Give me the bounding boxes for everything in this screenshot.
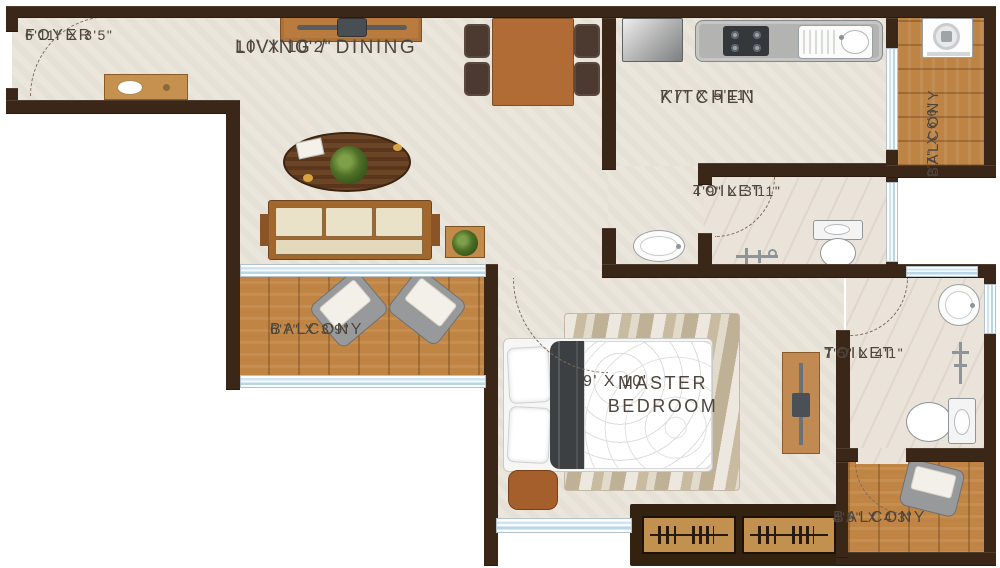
- hangers-icon: [658, 526, 676, 544]
- refrigerator: [622, 18, 683, 62]
- decor-icon: [303, 174, 313, 182]
- room-dimensions: 6'7" X 3'9": [270, 320, 350, 338]
- basin-bowl-icon: [640, 236, 678, 256]
- tv-panel: [782, 352, 820, 454]
- tv-screen-icon: [792, 393, 810, 417]
- window: [906, 266, 978, 277]
- wall: [984, 6, 996, 178]
- shower-icon: [950, 342, 970, 384]
- hangers-icon: [792, 526, 814, 544]
- wall: [836, 552, 996, 566]
- room-dimensions: 6'11" X 3'5": [25, 26, 113, 44]
- knob-icon: [163, 84, 170, 91]
- sofa-cushion: [325, 207, 373, 237]
- window: [240, 264, 486, 277]
- room-dimensions: 2'7" X 6'6": [924, 101, 941, 177]
- pillow-icon: [507, 346, 552, 404]
- room-dimensions: 4'5" X 4'3": [833, 508, 913, 526]
- sofa-cushion: [275, 207, 323, 237]
- wardrobe-panel: [642, 516, 736, 554]
- wall: [6, 6, 18, 32]
- dining-chair: [574, 24, 600, 58]
- kitchen-counter: [695, 20, 883, 62]
- wall: [226, 100, 240, 390]
- sofa: [268, 200, 432, 260]
- planter-stand: [445, 226, 485, 258]
- sink-basin-icon: [841, 30, 869, 54]
- wc-tank-icon: [813, 220, 863, 240]
- book-icon: [296, 137, 325, 159]
- wc-tank-icon: [948, 398, 976, 444]
- pipe-icon: [745, 248, 748, 265]
- wall: [698, 163, 890, 177]
- kitchen-sink: [798, 25, 873, 59]
- room-dimensions: 7'7" X 5'11": [660, 86, 753, 106]
- wall: [836, 448, 858, 462]
- wall: [698, 233, 712, 278]
- room-dimensions: 10' X 10'2": [235, 36, 332, 58]
- faucet-icon: [970, 303, 975, 308]
- ottoman: [508, 470, 558, 510]
- hangers-icon: [758, 526, 776, 544]
- dining-chair: [574, 62, 600, 96]
- dining-table: [492, 18, 574, 106]
- wc-bowl-icon: [906, 402, 952, 442]
- wall: [6, 6, 996, 18]
- room-dimensions: 4'9" X 3'11": [693, 182, 781, 200]
- faucet-icon: [839, 35, 844, 40]
- plant-icon: [330, 146, 368, 184]
- decor-icon: [393, 144, 402, 151]
- plant-icon: [452, 230, 478, 256]
- wc-lid-icon: [824, 224, 850, 235]
- wall: [906, 448, 996, 462]
- sofa-seat: [275, 239, 423, 255]
- pipe-icon: [959, 342, 962, 384]
- wall: [602, 264, 904, 278]
- pipe-icon: [954, 364, 967, 367]
- dining-chair: [464, 24, 490, 58]
- shoe-cabinet: [104, 74, 188, 100]
- shower-icon: [736, 246, 778, 266]
- pillow-icon: [507, 406, 552, 464]
- floor-plan: FOYER 6'11" X 3'5" LIVING / DINING 10' X…: [0, 0, 1000, 568]
- faucet-icon: [676, 244, 681, 249]
- coffee-table: [283, 132, 411, 192]
- gas-hob-icon: [723, 26, 769, 56]
- window: [984, 284, 996, 334]
- tray-icon: [117, 80, 143, 95]
- sofa-cushion: [375, 207, 423, 237]
- sofa-armrest: [260, 214, 269, 246]
- drainboard-icon: [803, 30, 837, 54]
- shower-head-icon: [768, 249, 777, 258]
- window: [886, 48, 898, 150]
- hangers-icon: [692, 526, 714, 544]
- pipe-icon: [952, 351, 969, 354]
- armchair-cushion: [910, 465, 957, 498]
- wall: [602, 18, 616, 170]
- wash-basin: [938, 284, 980, 326]
- wc-lid-icon: [954, 409, 970, 435]
- window: [496, 518, 632, 533]
- window: [886, 182, 898, 262]
- pipe-icon: [758, 250, 761, 263]
- room-dimensions: 7'5" X 4'1": [824, 344, 904, 362]
- wash-basin: [633, 230, 685, 262]
- dining-chair: [464, 62, 490, 96]
- sliding-wardrobe: [630, 504, 846, 566]
- room-label-balcony-utility: BALCONY 2'7" X 6'6": [924, 27, 970, 177]
- basin-bowl-icon: [945, 291, 973, 319]
- wall: [6, 100, 240, 114]
- room-dimensions: 9' X 10': [583, 372, 647, 393]
- sofa-armrest: [431, 214, 440, 246]
- window: [240, 375, 486, 388]
- tv-screen-icon: [337, 18, 367, 37]
- wardrobe-panel: [742, 516, 836, 554]
